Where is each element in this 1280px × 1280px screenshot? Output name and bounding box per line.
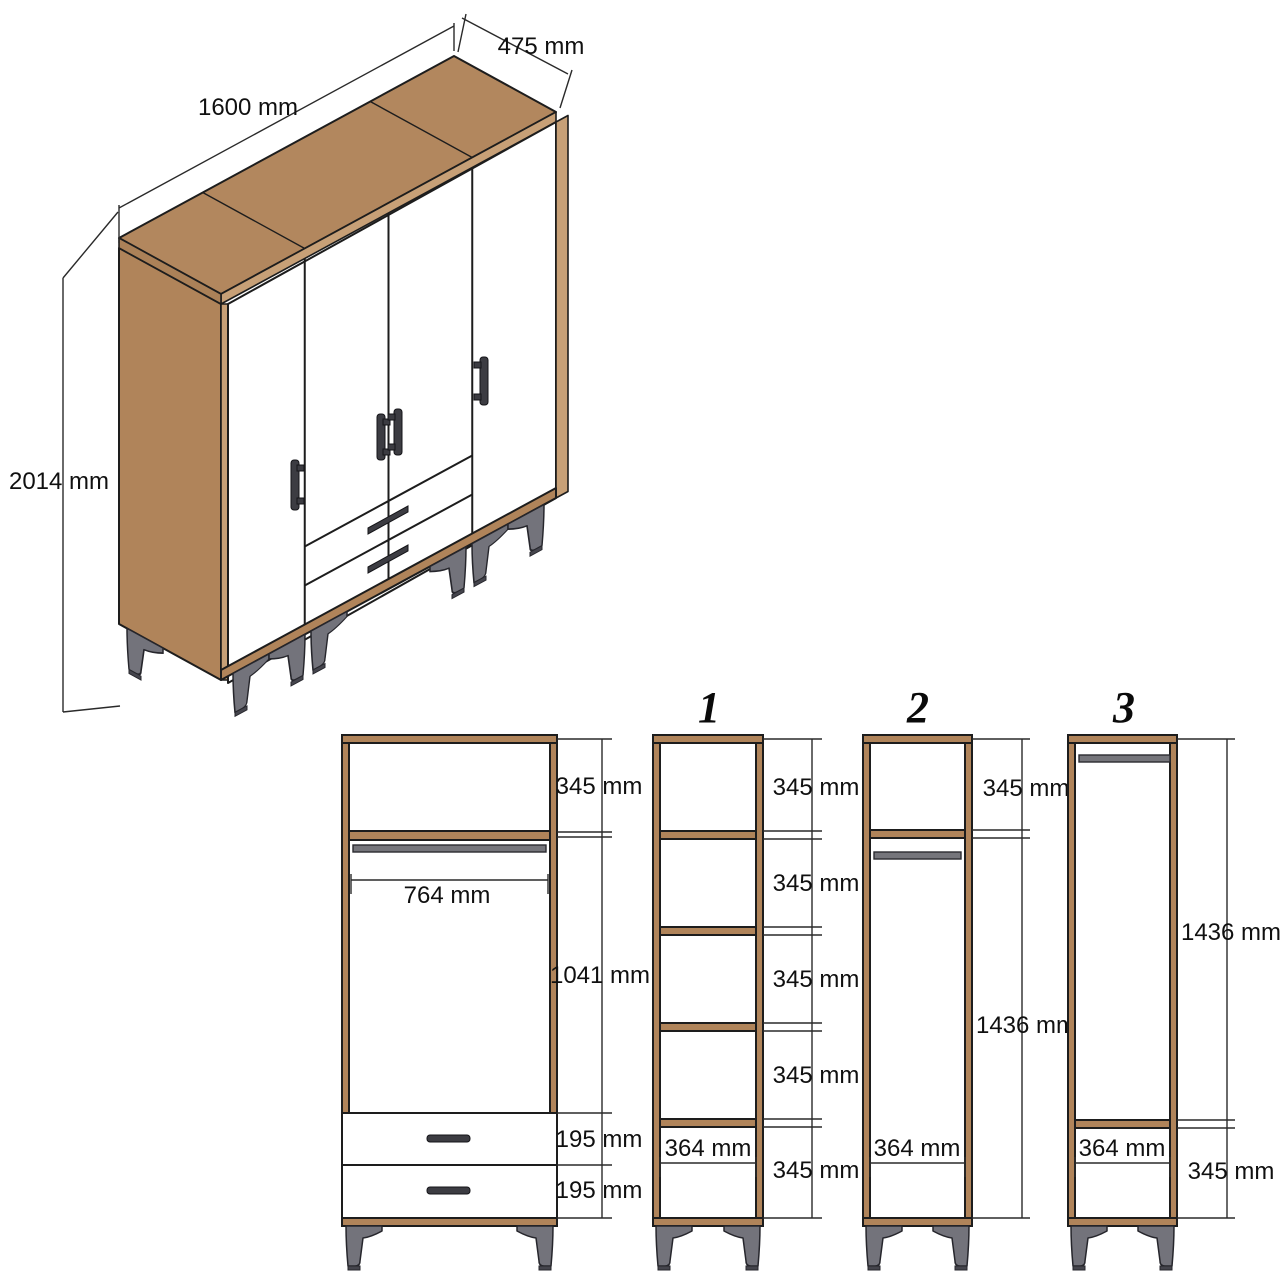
main-drawer-handle-top: [427, 1135, 470, 1142]
section-2-top-compartment-label: 345 mm: [983, 775, 1070, 802]
section-2-legs: [866, 1226, 969, 1270]
iso-height-dimension: 2014 mm: [9, 212, 120, 712]
main-top-drawer-label: 195 mm: [556, 1126, 643, 1153]
section-2-open-space-label: 1436 mm: [976, 1012, 1076, 1039]
main-section-view: 764 mm 345 mm 1041 mm 195 mm 195 mm: [342, 735, 650, 1270]
isometric-view: 1600 mm 475 mm 2014 mm: [9, 14, 584, 718]
drawing-svg: 1600 mm 475 mm 2014 mm: [0, 0, 1280, 1280]
section-1-compartment-label: 345 mm: [773, 774, 860, 801]
main-base-panel: [342, 1218, 557, 1226]
wardrobe-technical-drawing: 1600 mm 475 mm 2014 mm: [0, 0, 1280, 1280]
wardrobe-side-panel: [119, 248, 221, 680]
section-3-left-wall: [1068, 743, 1075, 1218]
section-3-shelf: [1075, 1120, 1170, 1128]
iso-width-label: 1600 mm: [198, 94, 298, 121]
section-2-right-wall: [965, 743, 972, 1218]
section-2-shelf: [870, 830, 965, 838]
main-left-wall: [342, 743, 349, 1113]
main-legs: [346, 1226, 553, 1270]
iso-depth-label: 475 mm: [498, 33, 585, 60]
main-width-label: 764 mm: [404, 882, 491, 909]
main-drawer-handle-bottom: [427, 1187, 470, 1194]
section-1-number: 1: [698, 683, 720, 732]
main-top-compartment-label: 345 mm: [556, 773, 643, 800]
side-panel-edge: [221, 304, 228, 680]
section-3-open-space-label: 1436 mm: [1181, 919, 1280, 946]
section-3-right-wall: [1170, 743, 1177, 1218]
section-1-shelf: [660, 831, 756, 839]
section-1-compartment-label: 345 mm: [773, 870, 860, 897]
section-1-compartment-label: 345 mm: [773, 1157, 860, 1184]
iso-height-label: 2014 mm: [9, 468, 109, 495]
section-3-dimensions: 1436 mm 345 mm: [1177, 739, 1280, 1218]
section-2-top: [863, 735, 972, 743]
main-top-panel: [342, 735, 557, 743]
section-1-shelf: [660, 1119, 756, 1127]
section-3-top: [1068, 735, 1177, 743]
section-3-hanging-rail: [1079, 755, 1170, 762]
section-1-compartment-label: 345 mm: [773, 1062, 860, 1089]
section-1-base: [653, 1218, 763, 1226]
main-shelf: [349, 831, 550, 840]
section-3-base: [1068, 1218, 1177, 1226]
section-2-left-wall: [863, 743, 870, 1218]
section-3-width-label: 364 mm: [1079, 1135, 1166, 1162]
section-2-number: 2: [906, 683, 929, 732]
main-bottom-drawer-label: 195 mm: [556, 1177, 643, 1204]
section-1-width-label: 364 mm: [665, 1135, 752, 1162]
section-2-base: [863, 1218, 972, 1226]
section-2-hanging-rail: [874, 852, 961, 859]
section-2-dimensions: 345 mm 1436 mm: [972, 739, 1076, 1218]
section-1-top: [653, 735, 763, 743]
section-1-legs: [656, 1226, 760, 1270]
section-2-width-label: 364 mm: [874, 1135, 961, 1162]
section-1-dimensions: 345 mm 345 mm 345 mm 345 mm 345 mm: [763, 739, 859, 1218]
section-1-right-wall: [756, 743, 763, 1218]
main-hanging-rail: [353, 845, 546, 852]
section-1-compartment-label: 345 mm: [773, 966, 860, 993]
section-1-shelf: [660, 1023, 756, 1031]
section-1-shelf: [660, 927, 756, 935]
section-view-3: 3 364 mm 1436 mm 345 mm: [1068, 683, 1280, 1270]
section-3-bottom-compartment-label: 345 mm: [1188, 1158, 1275, 1185]
section-view-1: 1 364 mm 345 mm 345 mm 345 mm 345 mm 345…: [653, 683, 859, 1270]
main-hanging-space-label: 1041 mm: [550, 962, 650, 989]
section-3-legs: [1071, 1226, 1174, 1270]
section-view-2: 2 364 mm 345 mm 1436 mm: [863, 683, 1076, 1270]
section-3-number: 3: [1112, 683, 1135, 732]
wardrobe-right-edge: [556, 116, 568, 499]
main-dimensions: 345 mm 1041 mm 195 mm 195 mm: [550, 739, 650, 1218]
section-1-left-wall: [653, 743, 660, 1218]
